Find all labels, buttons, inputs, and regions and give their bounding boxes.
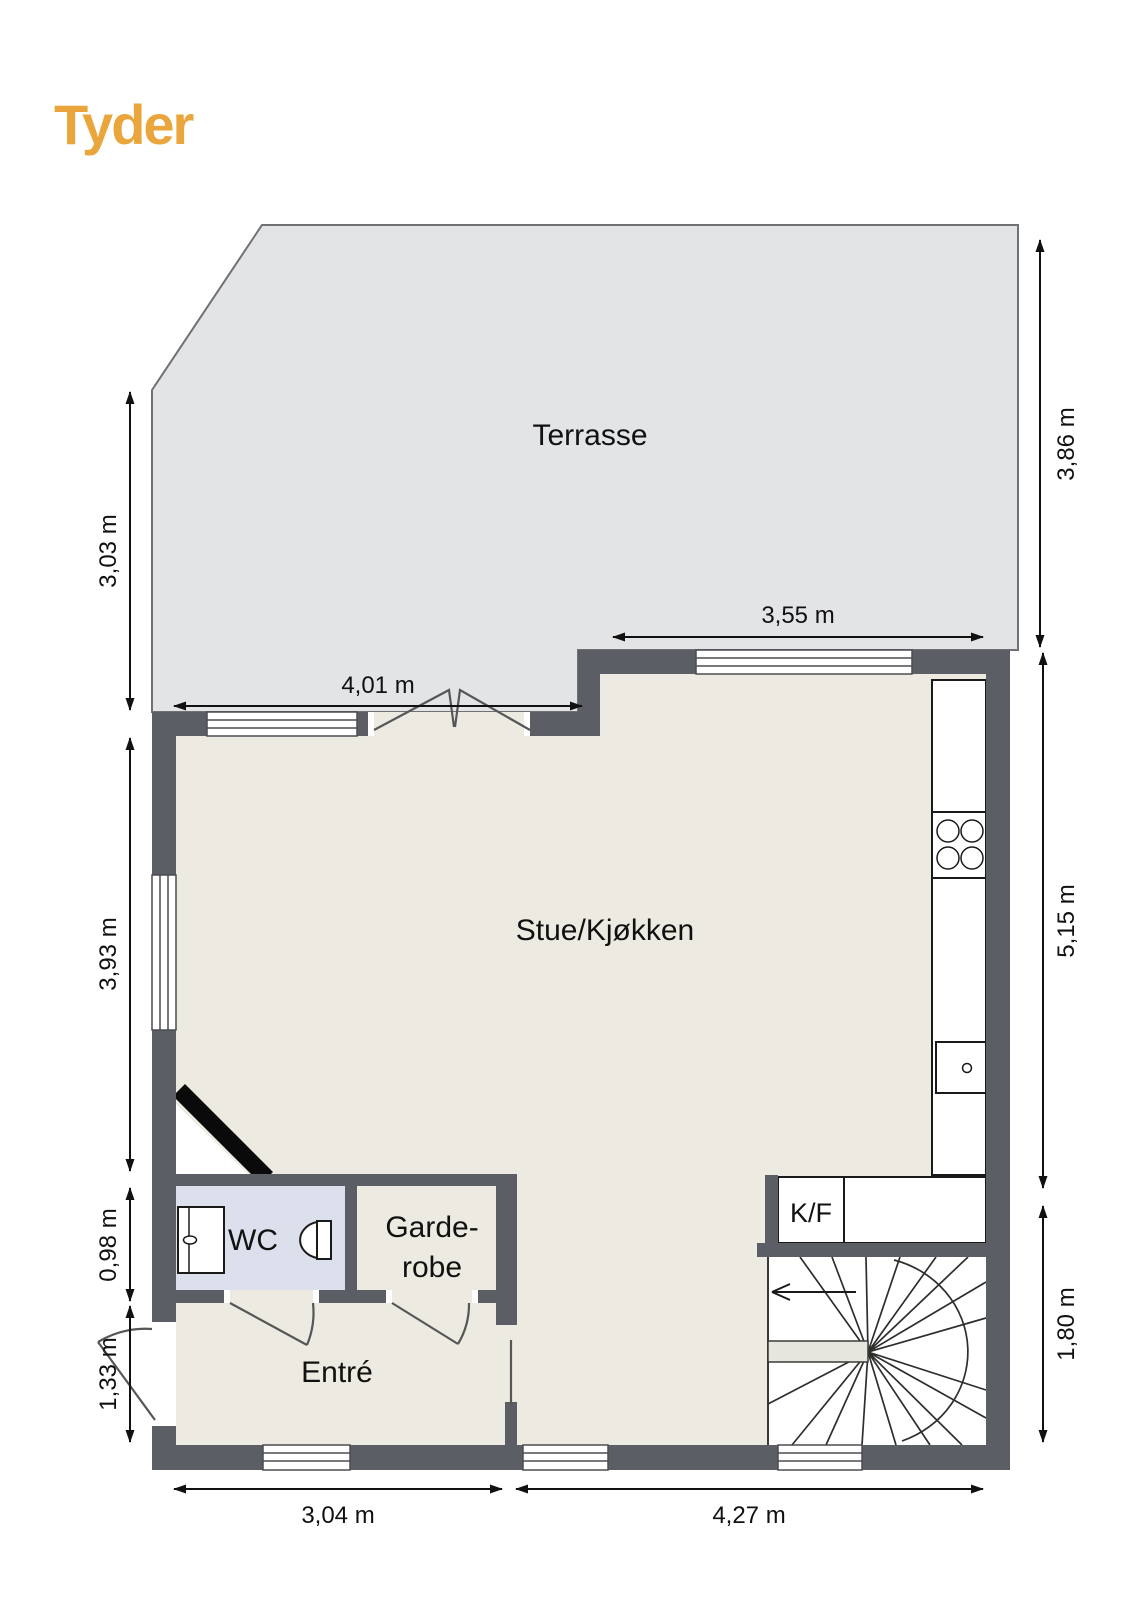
sink-icon [936,1042,986,1093]
terrace-area [152,225,1018,712]
living-kitchen-label: Stue/Kjøkken [516,914,694,947]
window-living-left [152,875,176,1030]
wardrobe-label-line1: Garde- [385,1211,478,1244]
dim-left-wc: 0,98 m [95,1208,122,1281]
dim-left-terrace: 3,03 m [95,514,122,587]
fridge-freezer-label: K/F [790,1198,832,1228]
floor-plan-canvas: 3,03 m 3,93 m 0,98 m 1,33 m 3,86 m 5,15 … [0,0,1131,1600]
dim-left-living: 3,93 m [95,917,122,990]
dim-bottom-right: 4,27 m [712,1502,785,1529]
window-terrace-left [207,712,357,736]
dim-top-terrace-door: 4,01 m [341,672,414,699]
entry-label: Entré [301,1356,373,1389]
stairs [768,1257,986,1445]
wc-door-threshold [230,1290,313,1303]
wc-label: WC [228,1224,278,1257]
dim-left-entry: 1,33 m [95,1337,122,1410]
wardrobe-label-line2: robe [402,1251,462,1284]
terrace-floor [152,225,1018,712]
window-kitchen-top [696,650,912,674]
dim-top-kitchen-window: 3,55 m [761,602,834,629]
kitchen-counter [932,680,986,1175]
terrace-door-threshold [374,712,524,736]
dim-right-living: 5,15 m [1053,884,1080,957]
window-stairs-bottom [778,1445,862,1470]
terrace-label: Terrasse [532,419,647,452]
floor-plan-page: Tyder [0,0,1131,1600]
dim-right-terrace: 3,86 m [1053,407,1080,480]
washbasin-icon [178,1207,224,1273]
wardrobe-door-threshold [392,1290,472,1303]
dim-bottom-left: 3,04 m [301,1502,374,1529]
counter-extension [844,1177,986,1243]
dim-right-stairs: 1,80 m [1053,1287,1080,1360]
stove-icon [932,812,986,878]
window-entry-bottom [263,1445,350,1470]
window-corridor-bottom [523,1445,608,1470]
stairs-divider [768,1341,868,1362]
